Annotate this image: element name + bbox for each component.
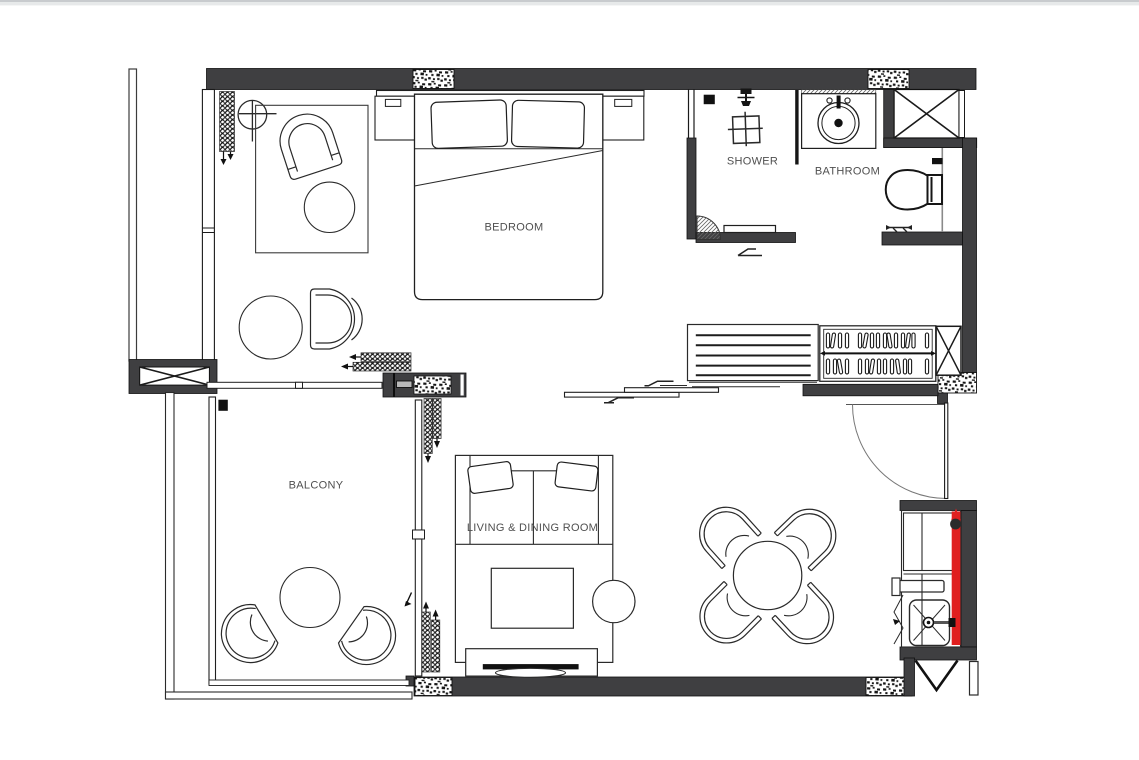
svg-text:BALCONY: BALCONY (289, 480, 344, 492)
svg-text:BATHROOM: BATHROOM (815, 166, 880, 178)
svg-text:SHOWER: SHOWER (727, 156, 778, 168)
svg-text:LIVING & DINING ROOM: LIVING & DINING ROOM (467, 522, 598, 534)
svg-text:BEDROOM: BEDROOM (485, 222, 544, 234)
